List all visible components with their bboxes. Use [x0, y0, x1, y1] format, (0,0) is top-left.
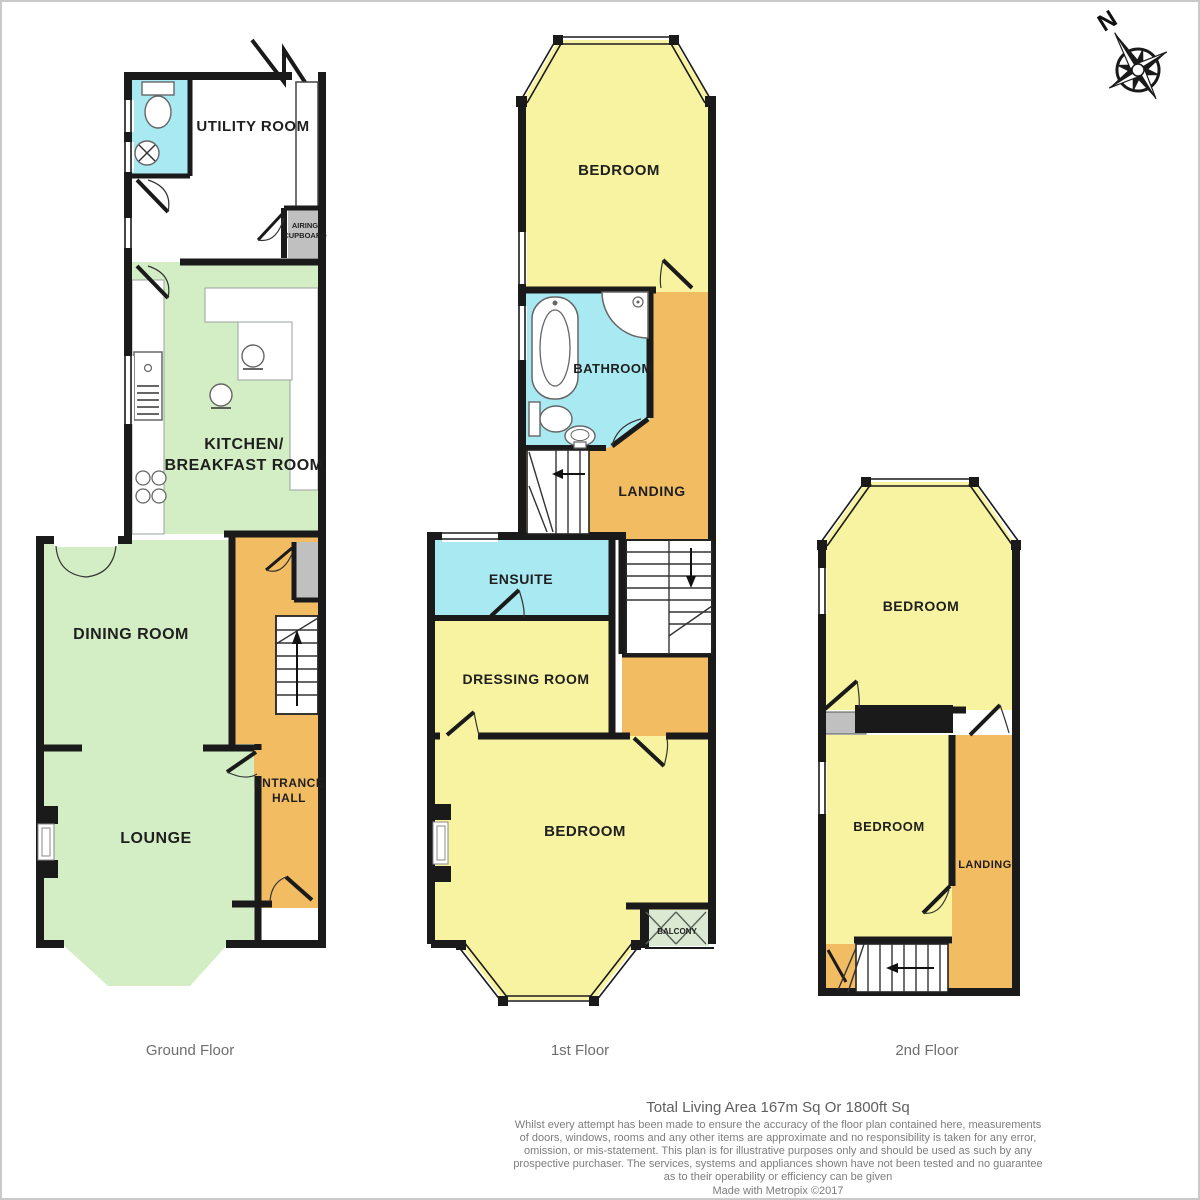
entrance-hall-label-1: ENTRANCE	[254, 776, 325, 790]
bedroom-front-label: BEDROOM	[578, 162, 660, 179]
bathroom-label: BATHROOM	[573, 361, 653, 376]
chimney-stack	[855, 705, 953, 733]
ground-floor-caption: Ground Floor	[146, 1042, 234, 1059]
dining-room-label: DINING ROOM	[73, 626, 189, 643]
toilet-fixture-gf	[142, 82, 174, 128]
disclaimer-line-2: of doors, windows, rooms and any other i…	[520, 1132, 1037, 1144]
disclaimer-line-3: omission, or mis-statement. This plan is…	[524, 1145, 1032, 1157]
first-small-stairs	[527, 450, 589, 534]
landing2-label: LANDING	[958, 859, 1012, 871]
first-main-staircase	[626, 540, 712, 654]
side-passage	[296, 82, 318, 208]
understairs-cupboard	[294, 542, 318, 598]
bedroom-rear-fireplace	[431, 804, 451, 882]
bedroom2-front-label: BEDROOM	[883, 598, 960, 614]
basin-fixture-gf	[135, 141, 159, 165]
kitchen-label-1: KITCHEN/	[204, 436, 284, 453]
bedroom2-rear-label: BEDROOM	[853, 819, 924, 834]
second-floor-caption: 2nd Floor	[895, 1042, 958, 1059]
airing-cupboard-label-1: AIRING	[292, 221, 318, 230]
sink-unit-fixture	[134, 352, 162, 420]
floorplan-image: UTILITY ROOM AIRING CUPBOARD KITCHEN/ BR…	[0, 0, 1200, 1200]
metropix-credit: Made with Metropix ©2017	[712, 1185, 843, 1197]
utility-room-label: UTILITY ROOM	[196, 118, 309, 135]
bedroom2-front-area	[822, 482, 1016, 710]
second-floor-plan: BEDROOM BEDROOM LANDING	[817, 477, 1021, 996]
disclaimer-line-5: as to their operability or efficiency ca…	[664, 1171, 892, 1183]
french-door-opening	[54, 533, 118, 547]
ground-staircase	[276, 616, 318, 714]
bedroom-rear-label: BEDROOM	[544, 823, 626, 840]
entrance-hall-label-2: HALL	[272, 791, 306, 805]
balcony-label: BALCONY	[657, 927, 697, 936]
first-floor-caption: 1st Floor	[551, 1042, 609, 1059]
disclaimer-line-4: prospective purchaser. The services, sys…	[513, 1158, 1042, 1170]
floorplan-svg: UTILITY ROOM AIRING CUPBOARD KITCHEN/ BR…	[0, 0, 1200, 1200]
lounge-label: LOUNGE	[120, 830, 191, 847]
dressing-room-label: DRESSING ROOM	[462, 671, 589, 687]
airing-cupboard-label-2: CUPBOARD	[283, 231, 327, 240]
landing1-label: LANDING	[618, 483, 685, 499]
ensuite-label: ENSUITE	[489, 571, 553, 587]
bath-fixture	[532, 297, 578, 399]
kitchen-label-2: BREAKFAST ROOM	[165, 457, 324, 474]
bedroom2-rear-area	[826, 735, 952, 952]
disclaimer-line-1: Whilst every attempt has been made to en…	[515, 1119, 1042, 1131]
total-living-area: Total Living Area 167m Sq Or 1800ft Sq	[646, 1099, 910, 1116]
